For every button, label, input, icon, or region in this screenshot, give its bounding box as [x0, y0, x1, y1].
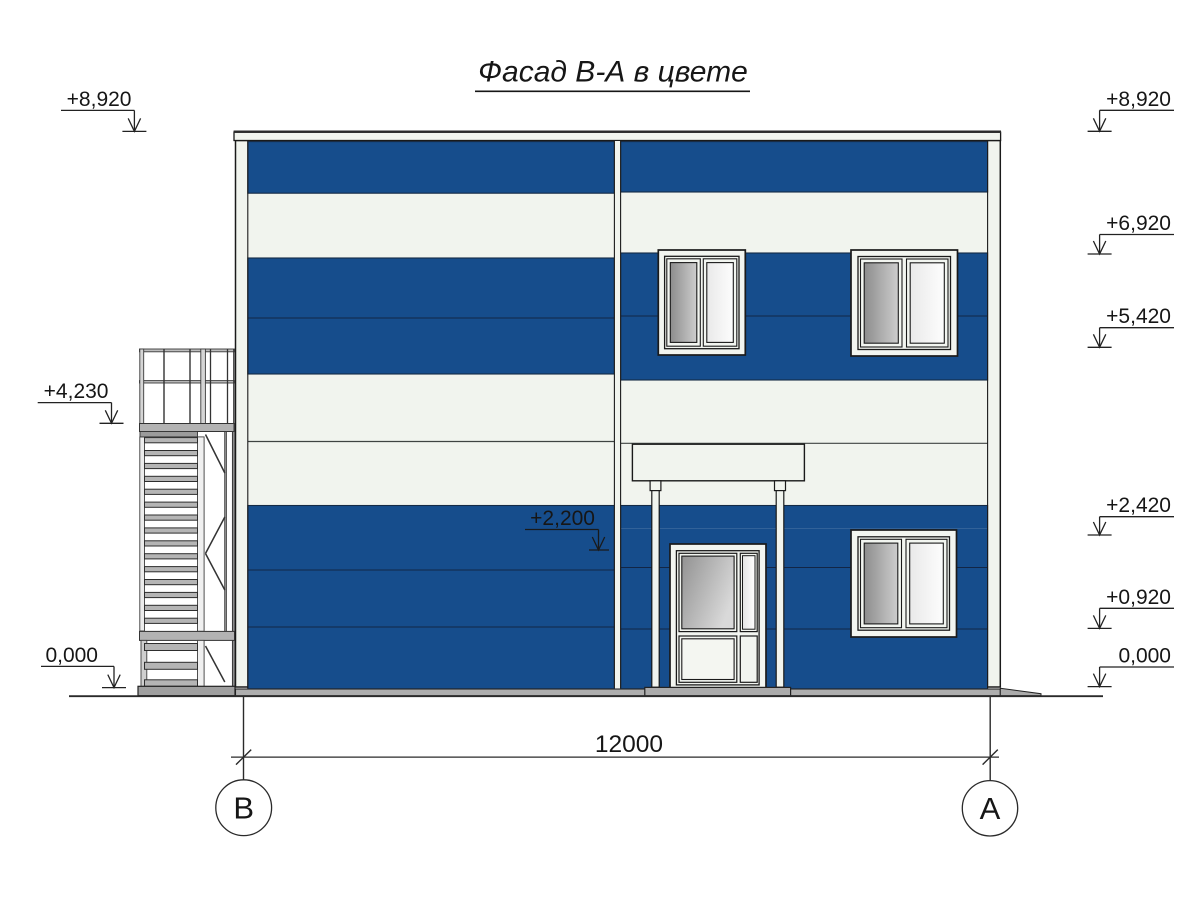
- svg-text:+5,420: +5,420: [1106, 305, 1171, 328]
- svg-text:0,000: 0,000: [45, 644, 98, 667]
- svg-text:+2,200: +2,200: [530, 507, 595, 530]
- svg-text:В: В: [233, 791, 254, 826]
- svg-text:Фасад В-А в цвете: Фасад В-А в цвете: [478, 56, 748, 89]
- svg-text:+0,920: +0,920: [1106, 586, 1171, 609]
- svg-text:0,000: 0,000: [1118, 645, 1171, 668]
- svg-text:+8,920: +8,920: [1106, 88, 1171, 111]
- svg-text:+4,230: +4,230: [44, 380, 109, 403]
- svg-text:+8,920: +8,920: [67, 88, 132, 111]
- svg-text:+2,420: +2,420: [1106, 494, 1171, 517]
- svg-text:12000: 12000: [595, 731, 663, 758]
- svg-text:А: А: [980, 791, 1001, 826]
- svg-text:+6,920: +6,920: [1106, 212, 1171, 235]
